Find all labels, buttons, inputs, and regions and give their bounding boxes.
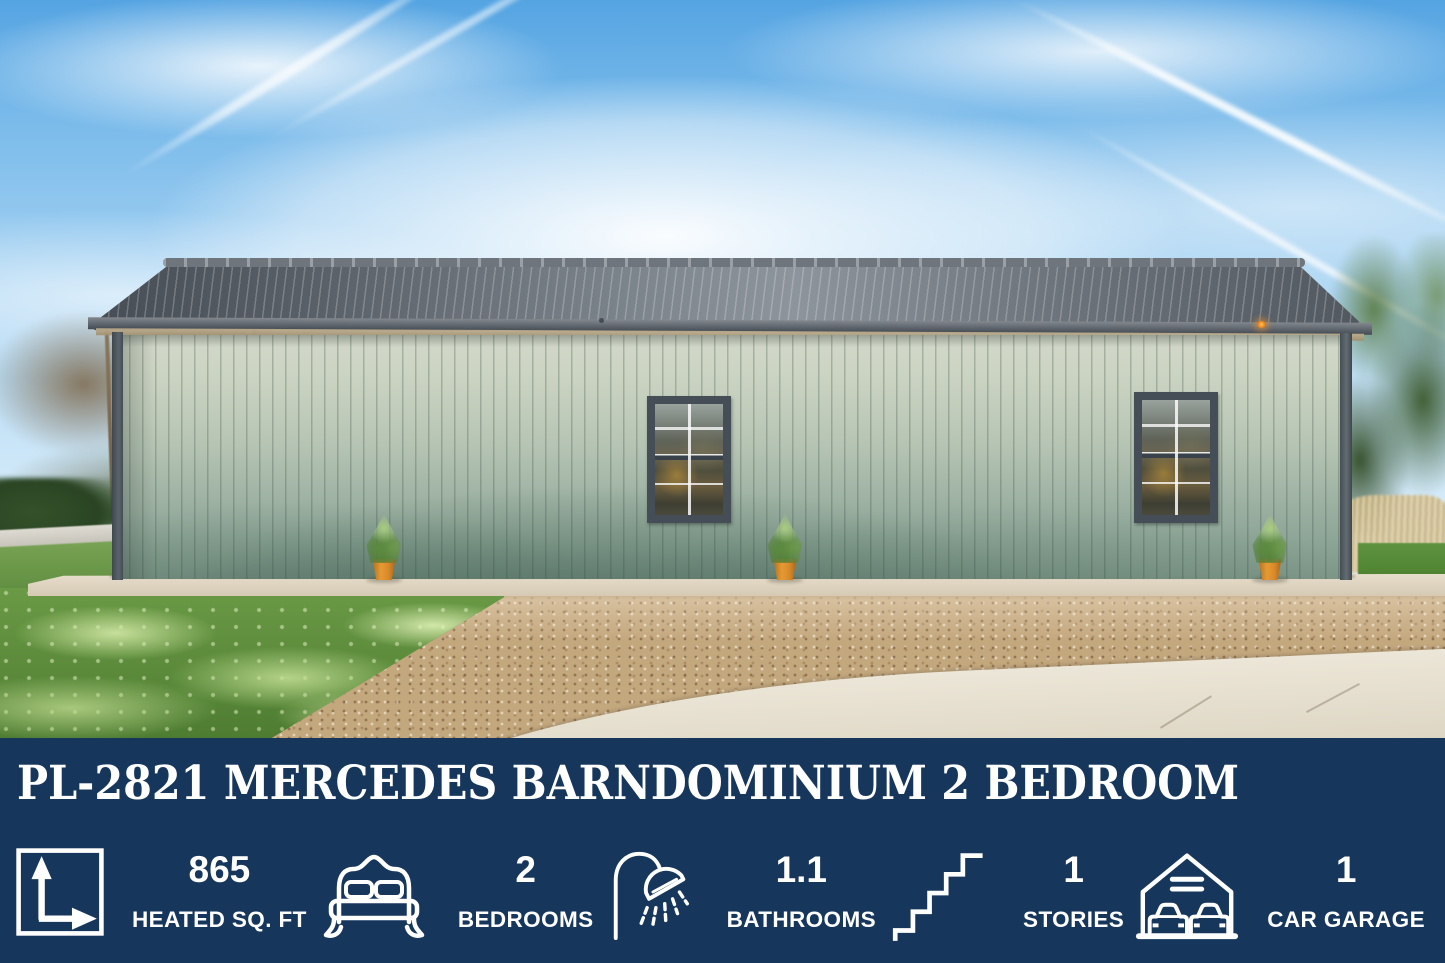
shrub bbox=[1250, 513, 1290, 563]
window-glass bbox=[1142, 400, 1210, 515]
shrub bbox=[765, 513, 805, 563]
stat-text: 2 BEDROOMS bbox=[458, 851, 594, 932]
window-muntin bbox=[1175, 400, 1178, 515]
hero-photo bbox=[0, 0, 1445, 738]
potted-plant bbox=[1248, 514, 1292, 580]
stats-row: 865 HEATED SQ. FT 2 BEDROOMS bbox=[14, 834, 1425, 949]
stat-value: 1.1 bbox=[776, 851, 827, 888]
downspout bbox=[1340, 333, 1352, 580]
stat-text: 1.1 BATHROOMS bbox=[727, 851, 876, 932]
window-muntin bbox=[688, 404, 691, 515]
shrub bbox=[364, 513, 404, 563]
eave-light bbox=[1257, 321, 1266, 328]
potted-plant bbox=[763, 514, 807, 580]
page-title: PL-2821 MERCEDES BARNDOMINIUM 2 BEDROOM bbox=[17, 760, 1239, 807]
stat-bathrooms: 1.1 BATHROOMS bbox=[603, 842, 876, 942]
area-dimensions-icon bbox=[14, 846, 106, 938]
shower-icon bbox=[603, 842, 701, 942]
stat-heated-sqft: 865 HEATED SQ. FT bbox=[14, 846, 307, 938]
stat-value: 1 bbox=[1063, 851, 1084, 888]
garage-icon bbox=[1133, 842, 1241, 942]
stat-label: CAR GARAGE bbox=[1267, 909, 1425, 932]
stat-value: 2 bbox=[515, 851, 536, 888]
stat-label: HEATED SQ. FT bbox=[132, 909, 307, 932]
stat-value: 1 bbox=[1336, 851, 1357, 888]
stat-label: BEDROOMS bbox=[458, 909, 594, 932]
corner-trim bbox=[112, 332, 123, 580]
stat-garage: 1 CAR GARAGE bbox=[1133, 842, 1425, 942]
stairs-icon bbox=[885, 840, 997, 944]
window-right bbox=[1134, 392, 1218, 523]
stat-text: 1 STORIES bbox=[1023, 851, 1124, 932]
listing-graphic: PL-2821 MERCEDES BARNDOMINIUM 2 BEDROOM … bbox=[0, 0, 1445, 963]
stat-stories: 1 STORIES bbox=[885, 840, 1124, 944]
window-left bbox=[647, 396, 731, 523]
stat-label: STORIES bbox=[1023, 909, 1124, 932]
stat-text: 1 CAR GARAGE bbox=[1267, 851, 1425, 932]
stat-label: BATHROOMS bbox=[727, 909, 876, 932]
window-glass bbox=[655, 404, 723, 515]
gutter-bracket bbox=[599, 318, 604, 323]
stat-text: 865 HEATED SQ. FT bbox=[132, 851, 307, 932]
stat-bedrooms: 2 BEDROOMS bbox=[316, 842, 594, 942]
bed-icon bbox=[316, 842, 432, 942]
roof-ridge-cap bbox=[163, 258, 1305, 267]
potted-plant bbox=[362, 514, 406, 580]
stat-value: 865 bbox=[189, 851, 251, 888]
info-banner: PL-2821 MERCEDES BARNDOMINIUM 2 BEDROOM … bbox=[0, 738, 1445, 963]
